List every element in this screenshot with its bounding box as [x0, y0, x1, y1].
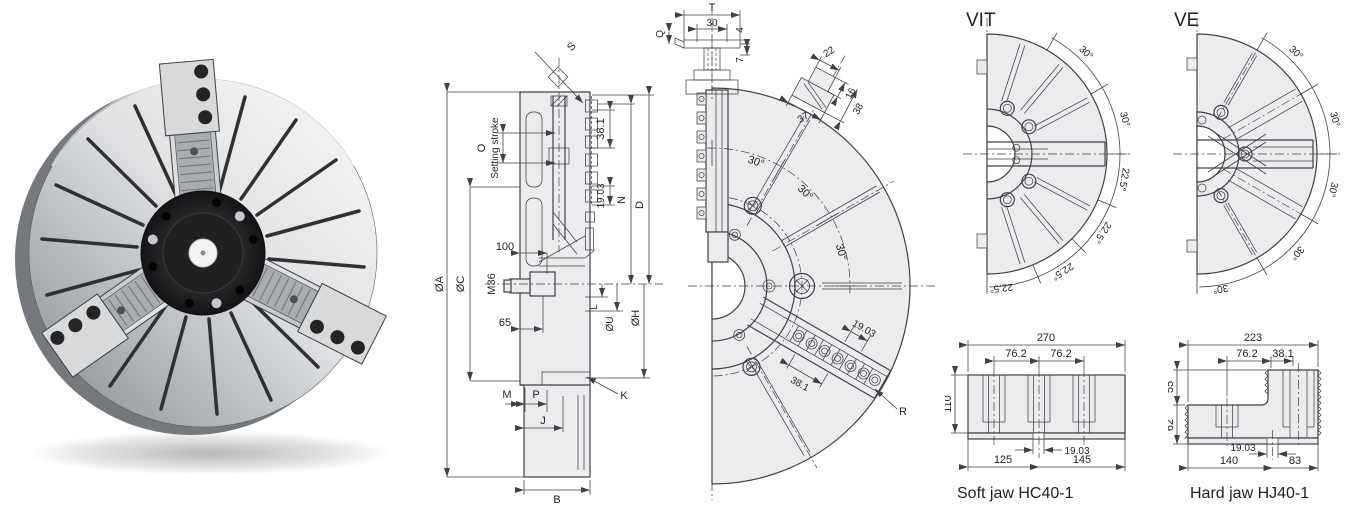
front-master-jaw-strip — [697, 90, 728, 262]
section-body — [485, 58, 663, 477]
dim-label-145: 145 — [1073, 454, 1091, 466]
vit-title: VIT — [966, 10, 996, 31]
dim-label-o: O — [476, 143, 488, 152]
dim-label-p: P — [532, 389, 539, 401]
dim-label-7: 7 — [735, 57, 746, 63]
dim-label-83: 83 — [1289, 455, 1301, 467]
ve-disc — [1173, 18, 1340, 292]
chuck-shadow — [28, 431, 392, 475]
vit-angle-5: 22.5° — [989, 281, 1013, 294]
ve-angle-3: 30° — [1288, 243, 1306, 262]
ve-angle-0: 30° — [1286, 44, 1305, 62]
dim-label-dia-h: ØH — [630, 310, 642, 327]
dim-label-s: S — [565, 40, 579, 54]
dim-label-soft-76-2-b: 76.2 — [1050, 348, 1071, 360]
dim-label-22: 22 — [822, 45, 838, 60]
front-tnut-detail: T 30 Q 4 7 — [655, 2, 750, 100]
vit-angle-2: 22.5° — [1116, 167, 1131, 192]
dim-label-hard-19-03: 19.03 — [1230, 443, 1255, 454]
dim-label-140: 140 — [1220, 455, 1238, 467]
dim-label-soft-76-2-a: 76.2 — [1005, 348, 1026, 360]
dim-label-38: 38 — [851, 101, 866, 116]
dim-label-55: 55 — [1168, 381, 1176, 393]
ve-angle-1: 30° — [1327, 111, 1342, 128]
dim-label-dia-u: ØU — [605, 317, 616, 332]
dim-label-dia-a: ØA — [435, 275, 446, 292]
ve-view: VE 30° 30° — [1158, 0, 1357, 310]
dim-label-100: 100 — [496, 241, 514, 253]
front-view: 19.03 38.1 R T 30 — [650, 0, 945, 507]
hard-jaw-caption: Hard jaw HJ40-1 — [1190, 485, 1309, 502]
dim-label-65: 65 — [499, 317, 511, 329]
dim-label-r: R — [899, 406, 907, 418]
soft-jaw-caption: Soft jaw HC40-1 — [957, 485, 1074, 502]
ve-angle-2: 30° — [1325, 181, 1339, 198]
ve-title: VE — [1174, 10, 1199, 31]
soft-jaw-drawing: 270 76.2 76.2 110 19.03 125 145 Soft jaw… — [945, 330, 1160, 507]
dim-label-223: 223 — [1244, 332, 1262, 344]
section-view: S ØA ØC O Setting stroke 38.1 19.03 N D … — [435, 0, 670, 507]
dim-label-hard-76-2: 76.2 — [1236, 348, 1257, 360]
dim-label-16: 16 — [844, 86, 859, 101]
dim-label-270: 270 — [1037, 332, 1055, 344]
dim-label-125: 125 — [994, 454, 1012, 466]
dim-label-q: Q — [655, 30, 666, 38]
dim-label-d: D — [634, 201, 646, 209]
dim-label-l: L — [589, 304, 600, 310]
dim-label-110: 110 — [945, 395, 954, 413]
dim-label-m: M — [502, 389, 511, 401]
catalog-drawing-page: S ØA ØC O Setting stroke 38.1 19.03 N D … — [0, 0, 1357, 507]
dim-label-setting-stroke: Setting stroke — [490, 117, 501, 179]
chuck-photo — [5, 25, 435, 485]
dim-label-j: J — [540, 415, 546, 427]
soft-jaw-body — [968, 368, 1125, 458]
dim-label-62: 62 — [1168, 419, 1176, 431]
vit-view: VIT 30° 30° 22.5° 22.5° — [948, 0, 1155, 310]
dim-label-n: N — [616, 196, 628, 204]
dim-label-m36: M36 — [486, 273, 498, 294]
dim-label-30: 30 — [706, 18, 718, 29]
dim-label-4: 4 — [735, 27, 746, 33]
dim-label-hard-38-1: 38.1 — [1272, 348, 1293, 360]
dim-label-38-1: 38.1 — [595, 118, 607, 139]
dim-label-b: B — [553, 494, 560, 506]
dim-label-t: T — [709, 2, 716, 14]
vit-angle-0: 30° — [1076, 44, 1095, 62]
chuck-hub — [141, 191, 265, 315]
dim-label-dia-c: ØC — [455, 276, 467, 293]
dim-label-19-03: 19.03 — [596, 183, 607, 208]
dim-label-k: K — [620, 390, 628, 402]
hard-jaw-drawing: 223 76.2 38.1 55 62 19.03 140 83 Hard ja… — [1168, 330, 1357, 507]
vit-angle-1: 30° — [1117, 111, 1132, 128]
ve-angle-4: 30° — [1212, 282, 1229, 295]
